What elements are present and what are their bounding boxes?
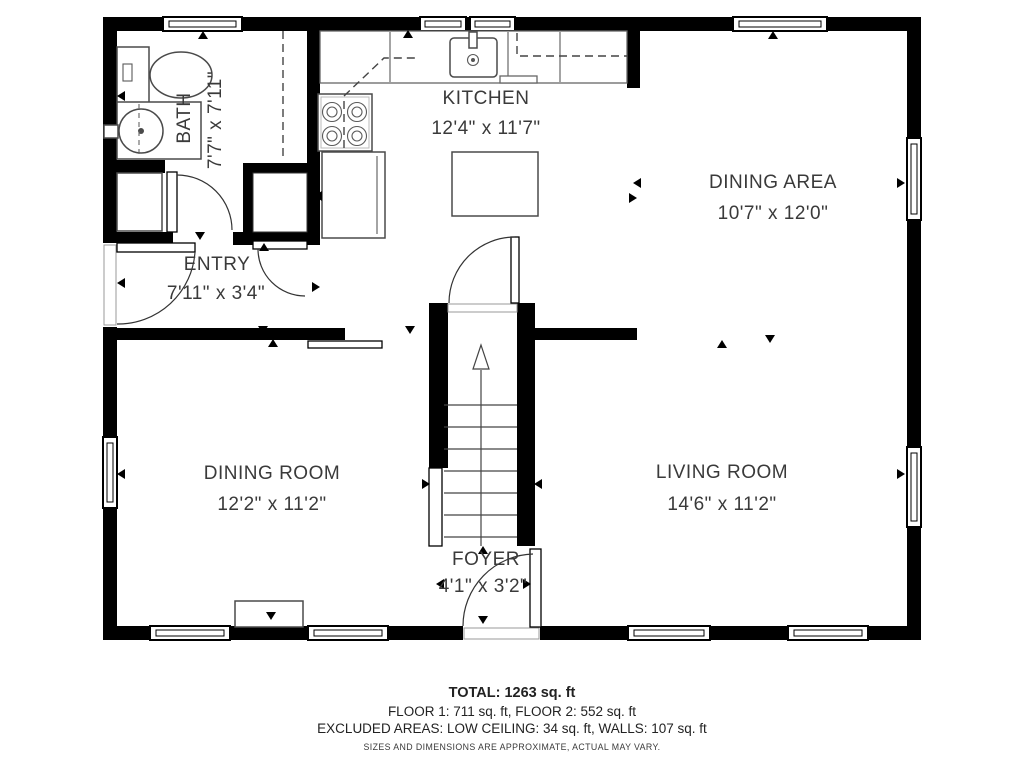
room-dims-bath: 7'7" x 7'11" — [205, 71, 226, 169]
window — [733, 17, 827, 31]
summary-floors: FLOOR 1: 711 sq. ft, FLOOR 2: 552 sq. ft — [388, 704, 636, 719]
summary-disclaimer: SIZES AND DIMENSIONS ARE APPROXIMATE, AC… — [364, 742, 661, 752]
window — [103, 437, 117, 508]
closet-interior — [253, 173, 307, 232]
room-dims-kitchen: 12'4" x 11'7" — [431, 118, 540, 139]
window — [907, 138, 921, 220]
refrigerator — [322, 152, 385, 238]
room-label-kitchen: KITCHEN — [443, 88, 530, 109]
floor-plan-page: BATH 7'7" x 7'11" KITCHEN 12'4" x 11'7" … — [0, 0, 1024, 768]
stair-door — [448, 237, 519, 312]
room-dims-dining-room: 12'2" x 11'2" — [217, 494, 326, 515]
summary-excluded: EXCLUDED AREAS: LOW CEILING: 34 sq. ft, … — [317, 721, 707, 736]
area-summary: TOTAL: 1263 sq. ft FLOOR 1: 711 sq. ft, … — [317, 685, 707, 752]
toilet — [117, 47, 212, 103]
kitchen-island — [452, 152, 538, 216]
window — [420, 17, 466, 31]
stairs-up-arrow — [473, 345, 489, 369]
bath-door — [167, 172, 232, 232]
room-dims-living-room: 14'6" x 11'2" — [667, 494, 776, 515]
room-label-bath: BATH — [174, 92, 195, 143]
window — [308, 626, 388, 640]
floor-plan-drawing: BATH 7'7" x 7'11" KITCHEN 12'4" x 11'7" … — [0, 0, 1024, 768]
pocket-door — [308, 341, 382, 348]
room-dims-foyer: 4'1" x 3'2" — [439, 576, 528, 597]
window — [907, 447, 921, 527]
window — [163, 17, 242, 31]
room-label-dining-area: DINING AREA — [709, 172, 837, 193]
room-label-foyer: FOYER — [452, 549, 520, 570]
window — [150, 626, 230, 640]
window — [470, 17, 515, 31]
stair-railing — [429, 468, 442, 546]
window — [788, 626, 868, 640]
shower-stall — [117, 173, 162, 231]
room-label-dining-room: DINING ROOM — [204, 463, 340, 484]
summary-total: TOTAL: 1263 sq. ft — [449, 685, 576, 701]
room-label-entry: ENTRY — [184, 254, 251, 275]
stove — [318, 94, 372, 151]
window — [628, 626, 710, 640]
room-label-living-room: LIVING ROOM — [656, 462, 788, 483]
kitchen-sink — [450, 32, 497, 77]
room-dims-entry: 7'11" x 3'4" — [167, 283, 265, 304]
room-dims-dining-area: 10'7" x 12'0" — [718, 203, 829, 224]
